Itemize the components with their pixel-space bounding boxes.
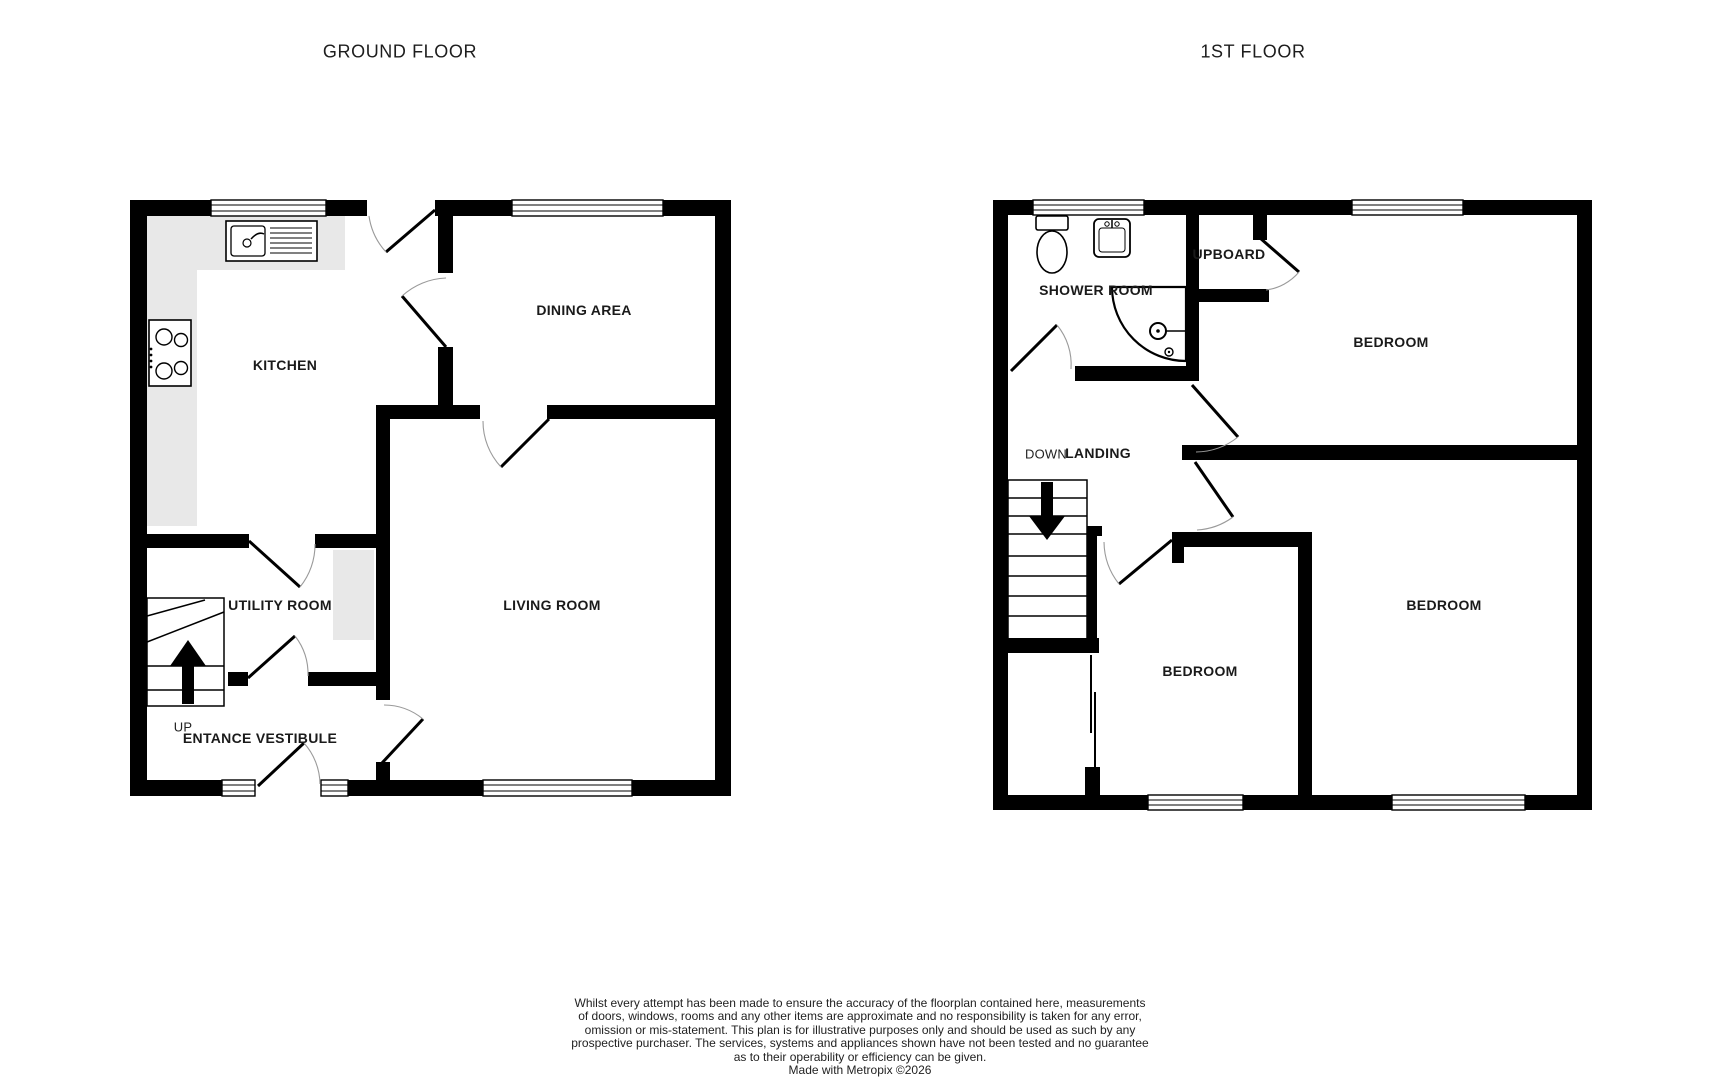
first-floor-title: 1ST FLOOR	[1200, 42, 1305, 63]
stairs-down-label: DOWN	[1025, 447, 1067, 462]
window	[222, 780, 255, 796]
kitchen-sink-icon	[226, 221, 317, 261]
stairs-up-label: UP	[174, 720, 192, 735]
disclaimer: Whilst every attempt has been made to en…	[360, 997, 1360, 1077]
toilet-icon	[1036, 216, 1068, 273]
window	[1392, 795, 1525, 810]
room-label-bedroom-middle: BEDROOM	[1162, 663, 1237, 679]
disclaimer-line: of doors, windows, rooms and any other i…	[360, 1010, 1360, 1023]
window	[512, 200, 663, 216]
room-label-living: LIVING ROOM	[503, 597, 600, 613]
utility-appliance	[333, 550, 374, 640]
ground-floor-windows	[211, 200, 663, 796]
window	[321, 780, 348, 796]
washbasin-icon	[1094, 219, 1130, 257]
thin-partition	[1091, 655, 1095, 767]
ground-floor-title: GROUND FLOOR	[323, 42, 477, 63]
disclaimer-line: Whilst every attempt has been made to en…	[360, 997, 1360, 1010]
window	[483, 780, 632, 796]
room-label-landing: LANDING	[1065, 445, 1131, 461]
disclaimer-line: Made with Metropix ©2026	[360, 1064, 1360, 1077]
room-label-cupboard: UPBOARD	[1193, 246, 1266, 262]
stairs-up-icon	[147, 598, 224, 706]
ground-floor-plan	[130, 200, 731, 796]
disclaimer-line: omission or mis-statement. This plan is …	[360, 1024, 1360, 1037]
window	[1352, 200, 1463, 215]
window	[211, 200, 326, 216]
room-label-vestibule: ENTANCE VESTIBULE	[183, 730, 337, 746]
floorplan-page: GROUND FLOOR 1ST FLOOR KITCHEN DINING AR…	[0, 0, 1723, 1080]
room-label-bedroom-top: BEDROOM	[1353, 334, 1428, 350]
room-label-dining: DINING AREA	[536, 302, 631, 318]
stove-icon	[149, 320, 191, 386]
ground-floor-doors	[248, 210, 549, 786]
window	[1033, 200, 1144, 215]
room-label-bedroom-right: BEDROOM	[1406, 597, 1481, 613]
floorplan-drawing	[0, 0, 1723, 1080]
room-label-shower: SHOWER ROOM	[1039, 282, 1153, 298]
stairs-down-icon	[1008, 480, 1087, 640]
disclaimer-line: prospective purchaser. The services, sys…	[360, 1037, 1360, 1050]
shower-icon	[1112, 287, 1186, 361]
room-label-kitchen: KITCHEN	[253, 357, 317, 373]
disclaimer-line: as to their operability or efficiency ca…	[360, 1051, 1360, 1064]
window	[1148, 795, 1243, 810]
room-label-utility: UTILITY ROOM	[228, 597, 332, 613]
